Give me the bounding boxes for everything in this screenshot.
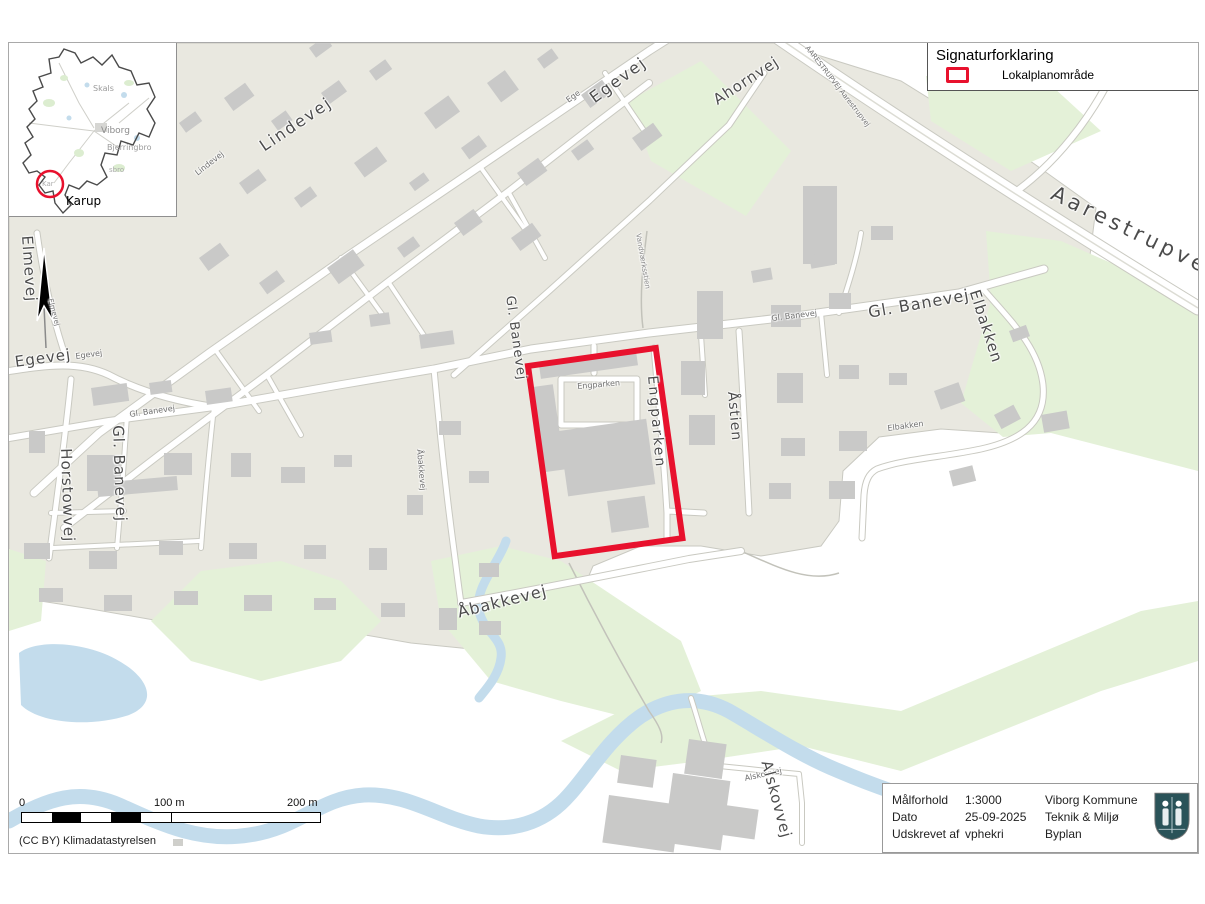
street-label: Gl. Banevej bbox=[110, 425, 128, 522]
inset-town-label: Karup bbox=[66, 195, 101, 207]
street-label: Åstien bbox=[725, 391, 743, 442]
info-label: Udskrevet af bbox=[892, 826, 965, 843]
map-document: LindevejLindevejEgeEgevejAhornvejAARESTR… bbox=[0, 0, 1205, 904]
legend-item-label: Lokalplanområde bbox=[1002, 68, 1094, 82]
info-dept: Viborg Kommune bbox=[1045, 792, 1155, 809]
pond bbox=[19, 644, 147, 722]
overview-inset-map: SkalsViborgBjerringbrosbroKarKarup bbox=[9, 43, 177, 217]
street-label: Elmevej bbox=[19, 235, 39, 303]
inset-town-label: sbro bbox=[109, 167, 124, 174]
attribution-chip bbox=[173, 839, 183, 846]
info-value: 25-09-2025 bbox=[965, 809, 1045, 826]
inset-town-label: Viborg bbox=[101, 127, 130, 136]
info-label: Dato bbox=[892, 809, 965, 826]
info-dept: Byplan bbox=[1045, 826, 1155, 843]
street-label: Horstowvej bbox=[58, 448, 76, 543]
base-map-graphics bbox=[9, 43, 1198, 853]
inset-town-label: Skals bbox=[93, 85, 114, 93]
attribution-text: (CC BY) Klimadatastyrelsen bbox=[19, 835, 156, 847]
viborg-coat-of-arms bbox=[1153, 791, 1191, 841]
map-canvas: LindevejLindevejEgeEgevejAhornvejAARESTR… bbox=[8, 42, 1199, 854]
scale-label: 100 m bbox=[154, 797, 185, 809]
info-value: 1:3000 bbox=[965, 792, 1045, 809]
municipality-outline-map bbox=[9, 43, 176, 216]
legend-title: Signaturforklaring bbox=[928, 43, 1198, 64]
inset-town-label: Kar bbox=[42, 181, 54, 188]
info-value: vphekri bbox=[965, 826, 1045, 843]
scale-label: 200 m bbox=[287, 797, 318, 809]
info-label: Målforhold bbox=[892, 792, 965, 809]
scale-bar-graphic bbox=[21, 812, 321, 823]
map-info-box: MålforholdDatoUdskrevet af 1:300025-09-2… bbox=[882, 783, 1198, 853]
legend-panel: Signaturforklaring Lokalplanområde bbox=[927, 43, 1198, 91]
municipality-boundary bbox=[23, 49, 155, 213]
lokalplan-symbol-icon bbox=[946, 67, 969, 83]
legend-item: Lokalplanområde bbox=[946, 67, 1198, 83]
scale-label: 0 bbox=[19, 797, 25, 809]
info-dept: Teknik & Miljø bbox=[1045, 809, 1155, 826]
inset-town-label: Bjerringbro bbox=[107, 144, 152, 152]
